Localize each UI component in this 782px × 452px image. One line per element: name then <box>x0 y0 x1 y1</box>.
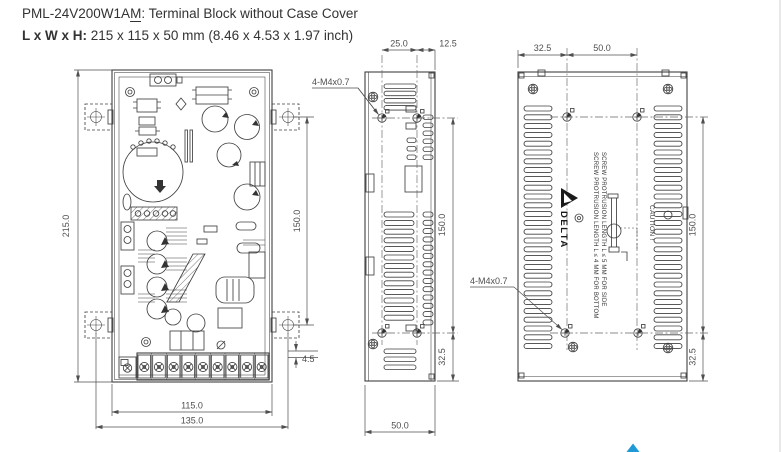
side-screw-spec-label: 4-M4x0.7 <box>312 77 350 87</box>
nav-triangle-icon <box>627 444 640 452</box>
side-view-drawing: 25.0 12.5 150.0 32.5 50.0 4-M4x0.7 <box>312 39 459 437</box>
dim-back-bottom-offset: 32.5 <box>688 348 698 366</box>
side-vents-right-lower <box>423 212 433 325</box>
dim-back-edge-to-hole: 32.5 <box>534 43 552 53</box>
technical-drawing: 215.0 150.0 4.5 115.0 135.0 <box>0 0 782 452</box>
terminal-screws <box>138 355 268 378</box>
front-case-outline <box>112 70 272 382</box>
pcb-components <box>121 74 265 350</box>
transformer <box>216 277 254 303</box>
delta-wordmark: DELTA <box>558 211 569 249</box>
dim-front-tab-offset: 4.5 <box>302 354 315 364</box>
front-view-drawing: 215.0 150.0 4.5 115.0 135.0 <box>61 70 318 429</box>
screw-illustration <box>607 194 637 261</box>
dim-side-depth: 50.0 <box>391 421 409 431</box>
mounting-tabs <box>85 104 299 338</box>
dim-front-body-width: 115.0 <box>181 401 203 411</box>
delta-triangle-icon <box>561 188 578 208</box>
pcb-outline <box>119 77 265 375</box>
side-vents-right-upper <box>423 115 433 160</box>
back-vents-right <box>654 106 682 349</box>
dim-back-hole-span: 50.0 <box>593 43 611 53</box>
dim-side-mount-span: 150.0 <box>437 214 447 237</box>
back-view-drawing: DELTA SCREW PROTRUSION LENGTH L ≤ 4 MM F… <box>470 43 708 381</box>
side-vents-main <box>384 212 414 320</box>
dim-front-mount-width: 135.0 <box>181 416 204 426</box>
dim-side-bottom-offset: 32.5 <box>437 348 447 366</box>
mounting-hole-crosshairs <box>87 108 297 334</box>
caution-label: CAUTION ! <box>648 205 655 241</box>
dim-front-height: 215.0 <box>61 215 71 238</box>
terminal-block <box>119 353 269 380</box>
datasheet-page: { "header": { "model_prefix": "PML-24V20… <box>0 0 782 452</box>
back-vents-left <box>524 106 552 349</box>
note-screw-protrusion-side: SCREW PROTRUSION LENGTH L ≤ 5 MM FOR SID… <box>600 152 606 307</box>
side-vents-bottom <box>384 349 416 370</box>
back-screw-spec-label: 4-M4x0.7 <box>470 276 508 286</box>
side-cutouts <box>366 106 422 331</box>
dim-front-mount-span: 150.0 <box>292 210 302 233</box>
note-screw-protrusion-bottom: SCREW PROTRUSION LENGTH L ≤ 4 MM FOR BOT… <box>592 152 598 319</box>
dim-side-hole-to-edge: 12.5 <box>439 39 457 49</box>
dim-back-mount-span: 150.0 <box>688 214 698 237</box>
main-capacitor <box>123 142 183 202</box>
case-edge-clips <box>108 110 276 332</box>
dim-side-hole-span: 25.0 <box>390 39 408 49</box>
